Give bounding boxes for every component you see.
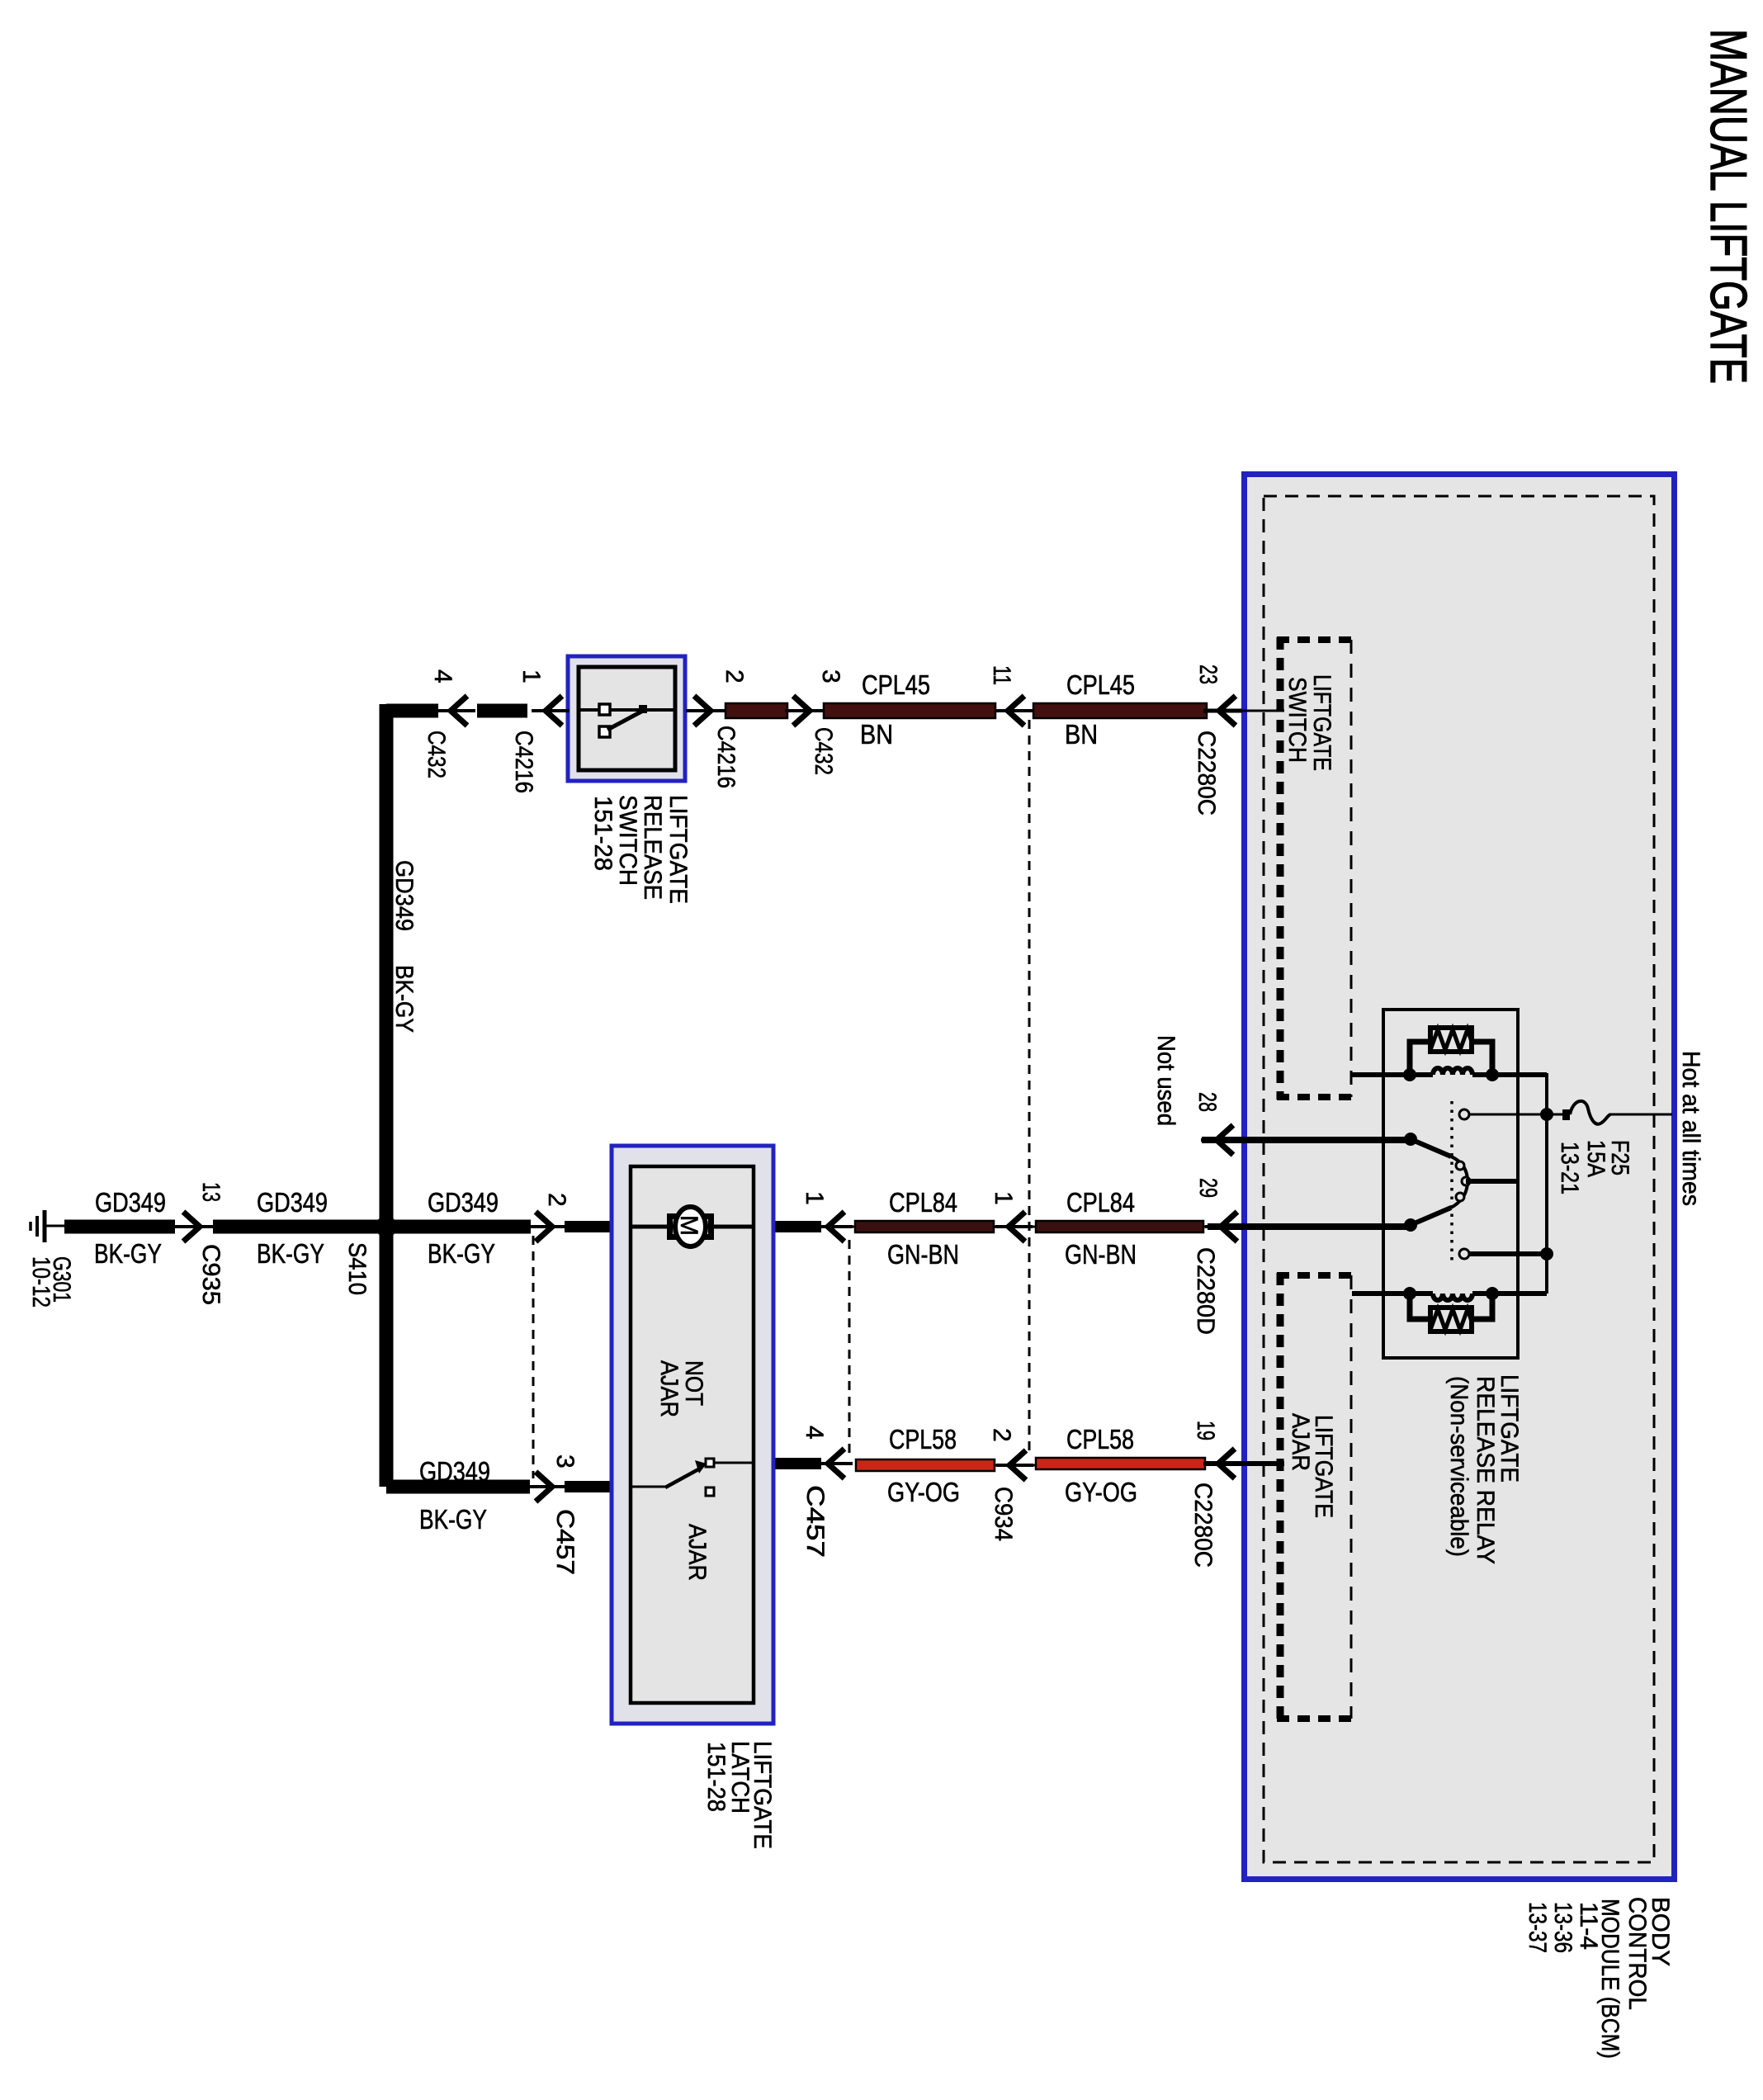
svg-text:C2280D: C2280D [1192,1247,1219,1335]
svg-text:CPL84: CPL84 [889,1187,957,1218]
svg-text:AJAR: AJAR [1287,1413,1314,1471]
svg-text:1: 1 [518,669,545,683]
svg-text:CPL84: CPL84 [1066,1187,1135,1218]
svg-text:13: 13 [197,1182,225,1202]
svg-text:23: 23 [1194,665,1222,684]
svg-text:C2280C: C2280C [1189,1483,1217,1568]
svg-text:1: 1 [801,1191,828,1205]
svg-text:BK-GY: BK-GY [428,1238,495,1269]
svg-text:1: 1 [990,1191,1017,1205]
svg-text:C457: C457 [551,1509,579,1575]
svg-text:MANUAL LIFTGATE: MANUAL LIFTGATE [1699,29,1756,384]
svg-text:M: M [675,1215,702,1236]
svg-text:BN: BN [860,719,893,750]
svg-text:Not used: Not used [1152,1035,1179,1126]
svg-text:LIFTGATE: LIFTGATE [1308,674,1335,771]
svg-text:CONTROL: CONTROL [1624,1897,1651,2010]
svg-text:13-37: 13-37 [1524,1902,1551,1953]
svg-text:2: 2 [543,1193,570,1207]
svg-text:4: 4 [429,669,456,683]
svg-text:GD349: GD349 [419,1456,490,1487]
svg-text:SWITCH: SWITCH [614,795,641,886]
svg-text:GD349: GD349 [257,1187,328,1218]
svg-text:BK-GY: BK-GY [94,1238,162,1269]
svg-text:C934: C934 [990,1487,1017,1541]
svg-text:2: 2 [988,1428,1015,1442]
svg-text:C432: C432 [810,727,837,775]
svg-text:Hot at all times: Hot at all times [1677,1051,1704,1206]
svg-text:RELEASE RELAY: RELEASE RELAY [1472,1376,1499,1564]
svg-text:AJAR: AJAR [683,1524,711,1581]
svg-text:NOT: NOT [680,1360,707,1406]
svg-text:28: 28 [1193,1092,1221,1112]
svg-text:C4216: C4216 [712,726,740,788]
svg-text:BK-GY: BK-GY [257,1238,324,1269]
svg-text:BN: BN [1065,719,1098,750]
svg-text:4: 4 [801,1426,828,1440]
svg-text:LIFTGATE: LIFTGATE [664,795,692,904]
svg-text:GD349: GD349 [428,1187,499,1218]
svg-text:AJAR: AJAR [655,1360,683,1417]
svg-text:GN-BN: GN-BN [887,1239,959,1270]
svg-text:3: 3 [551,1454,579,1469]
svg-text:GN-BN: GN-BN [1065,1239,1137,1270]
svg-text:19: 19 [1192,1421,1219,1440]
svg-text:10-12: 10-12 [27,1256,54,1308]
svg-text:C2280C: C2280C [1193,731,1220,816]
svg-text:C457: C457 [801,1485,829,1558]
svg-text:3: 3 [817,669,844,683]
svg-text:CPL45: CPL45 [862,669,930,700]
svg-text:15A: 15A [1582,1140,1609,1177]
svg-text:GY-OG: GY-OG [887,1477,960,1507]
svg-text:C432: C432 [423,731,450,778]
svg-text:(Non-serviceable): (Non-serviceable) [1445,1376,1472,1557]
svg-text:GY-OG: GY-OG [1065,1477,1137,1507]
svg-text:C935: C935 [197,1244,225,1305]
svg-text:151-28: 151-28 [702,1742,730,1812]
svg-text:2: 2 [721,669,748,683]
svg-text:11: 11 [988,665,1015,685]
svg-text:BK-GY: BK-GY [419,1504,487,1535]
svg-text:C4216: C4216 [510,731,537,793]
svg-text:CPL58: CPL58 [889,1424,957,1454]
svg-text:CPL45: CPL45 [1066,669,1135,700]
svg-text:13-36: 13-36 [1549,1902,1576,1953]
svg-text:BK-GY: BK-GY [390,965,418,1033]
svg-text:CPL58: CPL58 [1066,1424,1134,1454]
svg-text:151-28: 151-28 [589,796,617,871]
svg-text:GD349: GD349 [390,860,418,931]
svg-text:13-21: 13-21 [1556,1142,1583,1194]
svg-text:RELEASE: RELEASE [639,795,666,900]
svg-text:11-4: 11-4 [1575,1902,1602,1950]
svg-text:29: 29 [1194,1178,1222,1198]
svg-text:S410: S410 [343,1242,371,1295]
svg-text:SWITCH: SWITCH [1283,677,1311,763]
svg-text:GD349: GD349 [95,1187,166,1218]
